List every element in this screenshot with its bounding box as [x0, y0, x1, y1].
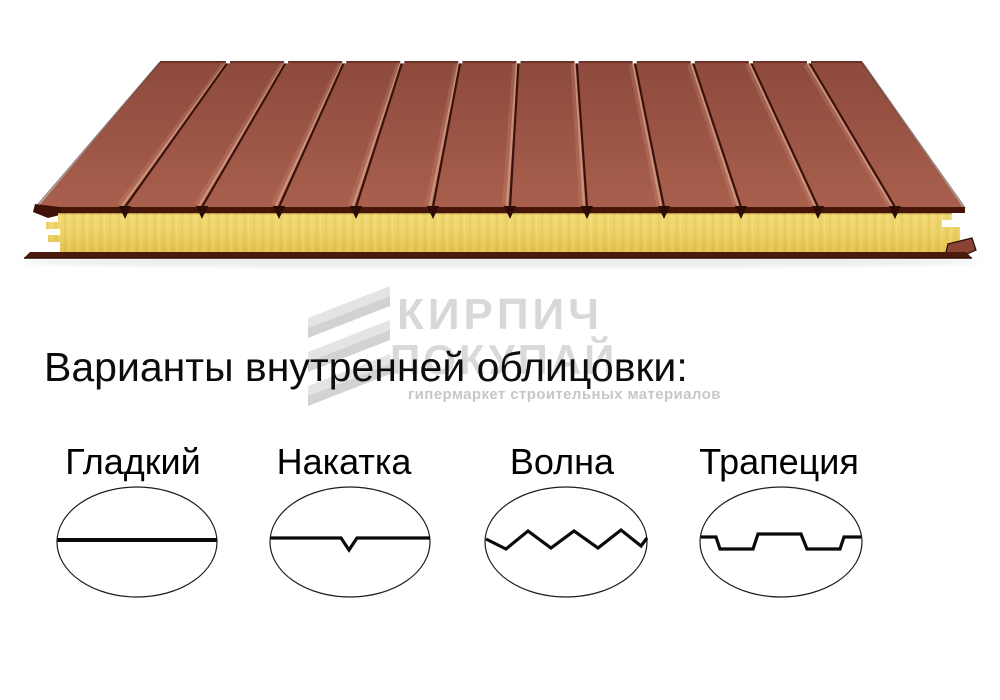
profile-oval-smooth	[57, 487, 217, 597]
profile-oval-wave	[485, 487, 647, 597]
profile-oval-notch	[270, 487, 430, 597]
page: КИРПИЧ ПОКУПАЙ Варианты внутренней облиц…	[0, 0, 1000, 700]
profile-oval-trapezoid	[700, 487, 862, 597]
profile-diagrams	[0, 0, 1000, 700]
